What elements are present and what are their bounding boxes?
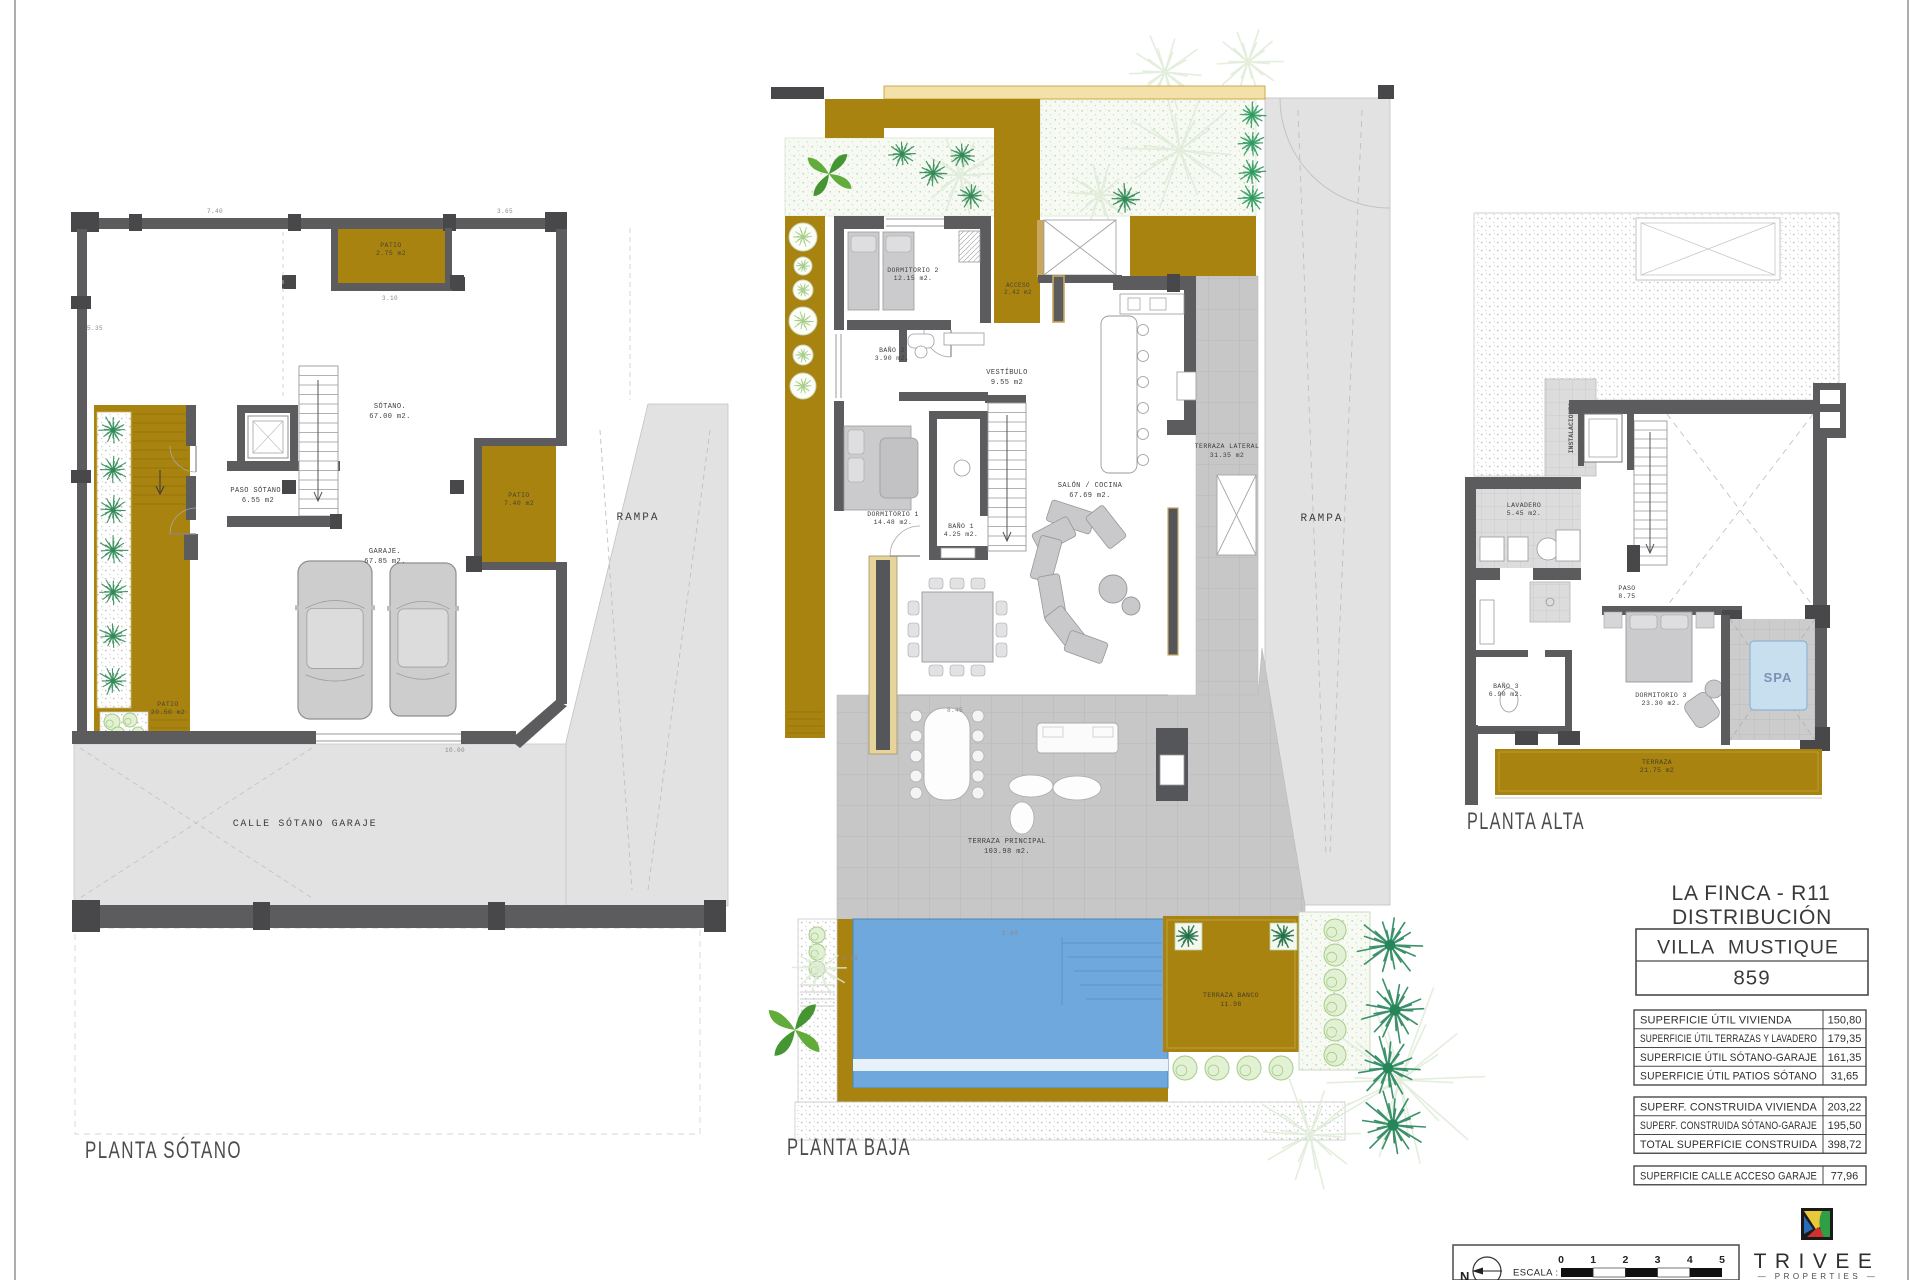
svg-text:9.55 m2: 9.55 m2 — [991, 379, 1023, 387]
svg-text:DORMITORIO 3: DORMITORIO 3 — [1635, 692, 1687, 699]
svg-text:3.90 m2.: 3.90 m2. — [875, 355, 909, 362]
svg-text:TOTAL SUPERFICIE CONSTRUIDA: TOTAL SUPERFICIE CONSTRUIDA — [1640, 1139, 1817, 1151]
svg-text:150,80: 150,80 — [1828, 1014, 1862, 1026]
svg-text:RAMPA: RAMPA — [616, 512, 659, 524]
svg-text:195,50: 195,50 — [1828, 1120, 1862, 1132]
svg-text:5: 5 — [1719, 1254, 1725, 1266]
svg-text:12.15 m2.: 12.15 m2. — [894, 275, 933, 282]
svg-text:7.40 m2: 7.40 m2 — [504, 500, 534, 507]
svg-text:DORMITORIO 2: DORMITORIO 2 — [887, 267, 939, 274]
svg-text:8.75: 8.75 — [1618, 593, 1635, 600]
svg-text:BAÑO 2: BAÑO 2 — [879, 346, 905, 354]
svg-text:23.30 m2.: 23.30 m2. — [1642, 700, 1681, 707]
svg-text:TERRAZA LATERAL: TERRAZA LATERAL — [1195, 443, 1260, 450]
svg-text:TERRAZA BANCO: TERRAZA BANCO — [1203, 992, 1259, 999]
svg-text:PASO SÓTANO.: PASO SÓTANO. — [230, 485, 285, 495]
svg-text:SUPERFICIE ÚTIL PATIOS SÓTANO: SUPERFICIE ÚTIL PATIOS SÓTANO — [1640, 1070, 1817, 1083]
svg-text:398,72: 398,72 — [1828, 1139, 1862, 1151]
svg-text:RAMPA: RAMPA — [1300, 513, 1343, 525]
svg-text:2.42 m2: 2.42 m2 — [1004, 289, 1032, 296]
svg-text:SPA: SPA — [1764, 670, 1793, 685]
svg-text:9.60: 9.60 — [1002, 930, 1018, 937]
svg-text:VESTÍBULO: VESTÍBULO — [986, 368, 1027, 377]
svg-text:PATIO: PATIO — [508, 492, 530, 499]
svg-text:3.10: 3.10 — [382, 295, 398, 302]
svg-text:SÓTANO.: SÓTANO. — [374, 401, 406, 411]
svg-text:PATIO: PATIO — [380, 242, 402, 249]
svg-text:DISTRIBUCIÓN: DISTRIBUCIÓN — [1672, 906, 1832, 929]
svg-text:TERRAZA: TERRAZA — [1642, 759, 1672, 766]
svg-text:31.35 m2: 31.35 m2 — [1210, 452, 1244, 459]
svg-text:31,65: 31,65 — [1831, 1071, 1859, 1083]
svg-text:SUPERF. CONSTRUIDA SÓTANO-GARA: SUPERF. CONSTRUIDA SÓTANO-GARAJE — [1640, 1119, 1817, 1132]
svg-text:TERRAZA PRINCIPAL: TERRAZA PRINCIPAL — [968, 838, 1046, 846]
svg-text:BAÑO 3: BAÑO 3 — [1493, 682, 1519, 690]
svg-text:SUPERFICIE CALLE ACCESO GARAJE: SUPERFICIE CALLE ACCESO GARAJE — [1640, 1170, 1817, 1182]
svg-text:4.00: 4.00 — [842, 955, 858, 962]
svg-text:6.55 m2: 6.55 m2 — [242, 497, 274, 505]
svg-text:— PROPERTIES —: — PROPERTIES — — [1758, 1272, 1879, 1280]
svg-text:PLANTA SÓTANO: PLANTA SÓTANO — [85, 1137, 242, 1164]
svg-text:2.75 m2: 2.75 m2 — [376, 250, 406, 257]
svg-text:TRIVEE: TRIVEE — [1754, 1250, 1881, 1273]
svg-text:1: 1 — [1590, 1254, 1596, 1266]
svg-text:77,96: 77,96 — [1831, 1170, 1859, 1182]
svg-text:20.50 m2: 20.50 m2 — [151, 709, 185, 716]
svg-text:4.25 m2.: 4.25 m2. — [944, 531, 978, 538]
svg-text:5.35: 5.35 — [87, 325, 103, 332]
svg-text:SUPERFICIE ÚTIL SÓTANO-GARAJE: SUPERFICIE ÚTIL SÓTANO-GARAJE — [1640, 1051, 1817, 1064]
svg-text:179,35: 179,35 — [1828, 1033, 1862, 1045]
svg-text:6.90 m2.: 6.90 m2. — [1489, 691, 1523, 698]
svg-text:103.98 m2.: 103.98 m2. — [984, 848, 1030, 856]
svg-text:BAÑO 1: BAÑO 1 — [948, 522, 974, 530]
svg-text:67.85 m2.: 67.85 m2. — [364, 558, 405, 566]
svg-text:0: 0 — [1558, 1254, 1564, 1266]
svg-text:67.00 m2.: 67.00 m2. — [369, 413, 410, 421]
svg-text:PATIO: PATIO — [157, 701, 179, 708]
svg-text:21.75 m2: 21.75 m2 — [1640, 767, 1674, 774]
svg-text:8.45: 8.45 — [947, 707, 963, 714]
svg-text:2: 2 — [1622, 1254, 1628, 1266]
svg-text:LAVADERO: LAVADERO — [1507, 502, 1541, 509]
svg-text:ESCALA :: ESCALA : — [1513, 1268, 1558, 1279]
svg-text:3.65: 3.65 — [497, 208, 513, 215]
svg-text:PLANTA ALTA: PLANTA ALTA — [1467, 808, 1585, 835]
svg-text:SUPERF. CONSTRUIDA VIVIENDA: SUPERF. CONSTRUIDA VIVIENDA — [1640, 1101, 1817, 1113]
svg-text:ACCESO: ACCESO — [1006, 282, 1030, 289]
svg-text:N: N — [1460, 1269, 1469, 1280]
svg-text:5.45 m2.: 5.45 m2. — [1507, 510, 1541, 517]
svg-text:203,22: 203,22 — [1828, 1101, 1862, 1113]
svg-text:SUPERFICIE ÚTIL TERRAZAS Y LAV: SUPERFICIE ÚTIL TERRAZAS Y LAVADERO — [1640, 1032, 1817, 1045]
svg-text:LA FINCA - R11: LA FINCA - R11 — [1671, 882, 1830, 905]
svg-text:67.69 m2.: 67.69 m2. — [1069, 492, 1110, 500]
svg-text:14.48 m2.: 14.48 m2. — [874, 519, 913, 526]
svg-text:CALLE SÓTANO GARAJE: CALLE SÓTANO GARAJE — [233, 816, 377, 830]
svg-text:PLANTA BAJA: PLANTA BAJA — [787, 1134, 911, 1161]
svg-text:GARAJE.: GARAJE. — [369, 548, 401, 556]
svg-text:SALÓN / COCINA: SALÓN / COCINA — [1058, 480, 1123, 490]
svg-text:4: 4 — [1687, 1254, 1693, 1266]
svg-text:DORMITORIO 1: DORMITORIO 1 — [867, 511, 919, 518]
svg-text:859: 859 — [1733, 967, 1770, 990]
svg-text:10.00: 10.00 — [445, 747, 465, 754]
svg-text:11.98: 11.98 — [1220, 1001, 1242, 1008]
svg-text:SUPERFICIE ÚTIL VIVIENDA: SUPERFICIE ÚTIL VIVIENDA — [1640, 1013, 1792, 1026]
svg-text:VILLA MUSTIQUE: VILLA MUSTIQUE — [1657, 937, 1839, 959]
svg-text:PASO: PASO — [1618, 585, 1635, 592]
svg-text:7.40: 7.40 — [207, 208, 223, 215]
svg-text:3: 3 — [1655, 1254, 1661, 1266]
svg-text:161,35: 161,35 — [1828, 1052, 1862, 1064]
